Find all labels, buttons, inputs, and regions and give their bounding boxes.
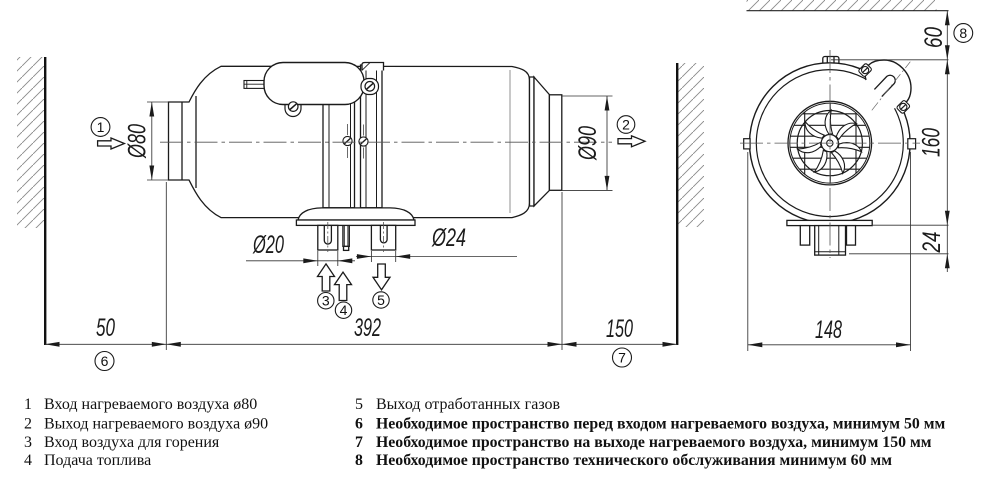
- svg-text:Выход отработанных газов: Выход отработанных газов: [376, 396, 561, 413]
- svg-text:24: 24: [918, 232, 946, 254]
- svg-text:6: 6: [101, 353, 109, 369]
- svg-text:3: 3: [24, 434, 32, 451]
- svg-text:60: 60: [920, 27, 948, 48]
- svg-text:Необходимое пространство на вы: Необходимое пространство на выходе нагре…: [376, 434, 932, 451]
- svg-text:4: 4: [340, 302, 348, 318]
- svg-text:148: 148: [815, 316, 842, 344]
- svg-text:Ø90: Ø90: [574, 126, 602, 161]
- svg-text:7: 7: [618, 349, 626, 365]
- svg-text:Необходимое пространство перед: Необходимое пространство перед входом на…: [376, 416, 946, 433]
- svg-text:Подача топлива: Подача топлива: [44, 452, 151, 469]
- svg-text:150: 150: [606, 315, 633, 343]
- svg-text:2: 2: [622, 116, 630, 132]
- svg-text:Необходимое пространство техни: Необходимое пространство технического об…: [376, 452, 892, 469]
- svg-text:Ø24: Ø24: [431, 224, 466, 252]
- svg-text:Выход нагреваемого воздуха ø90: Выход нагреваемого воздуха ø90: [44, 416, 268, 433]
- svg-text:1: 1: [97, 119, 105, 135]
- svg-text:7: 7: [355, 434, 363, 451]
- svg-text:4: 4: [24, 452, 32, 469]
- svg-text:Ø20: Ø20: [252, 231, 284, 259]
- svg-text:1: 1: [24, 396, 32, 413]
- svg-text:Вход воздуха для горения: Вход воздуха для горения: [44, 434, 220, 451]
- svg-text:8: 8: [355, 452, 363, 469]
- svg-text:6: 6: [355, 416, 363, 433]
- svg-text:Ø80: Ø80: [124, 124, 152, 159]
- svg-text:Вход нагреваемого воздуха ø80: Вход нагреваемого воздуха ø80: [44, 396, 257, 413]
- svg-text:160: 160: [918, 128, 946, 157]
- svg-text:5: 5: [355, 396, 363, 413]
- svg-text:5: 5: [377, 292, 385, 308]
- svg-text:3: 3: [322, 293, 330, 309]
- svg-text:8: 8: [959, 25, 967, 41]
- svg-text:2: 2: [24, 416, 32, 433]
- svg-text:392: 392: [354, 314, 381, 342]
- svg-text:50: 50: [96, 314, 115, 342]
